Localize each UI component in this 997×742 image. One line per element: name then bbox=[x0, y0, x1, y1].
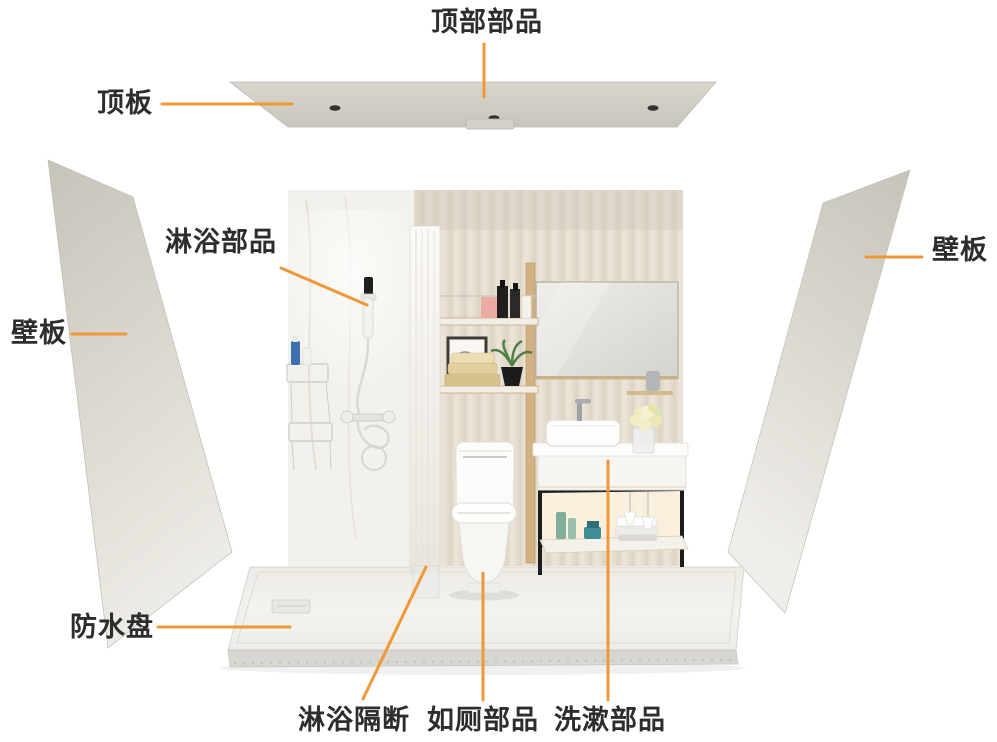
label-toilet-parts: 如厕部品 bbox=[427, 706, 539, 734]
downlight-icon bbox=[330, 105, 341, 111]
shower-partition bbox=[410, 226, 440, 598]
bottle-icon bbox=[522, 296, 531, 318]
bottle-icon bbox=[568, 518, 576, 539]
pump-bottle-icon bbox=[497, 286, 508, 318]
faucet-icon bbox=[577, 401, 582, 421]
jar-icon bbox=[584, 527, 601, 539]
shampoo-bottle-icon bbox=[291, 341, 300, 365]
label-ceiling-panel: 顶板 bbox=[97, 89, 153, 117]
cup-icon bbox=[646, 371, 660, 391]
ceiling-vent-icon bbox=[466, 119, 514, 129]
towel-icon bbox=[445, 374, 500, 386]
label-wall-panel-left: 壁板 bbox=[11, 319, 67, 347]
label-washing-parts: 洗漱部品 bbox=[554, 706, 666, 734]
ceiling-panel bbox=[230, 82, 716, 129]
label-top-parts: 顶部部品 bbox=[431, 8, 543, 36]
vanity-cabinet bbox=[538, 456, 686, 490]
exploded-bathroom-diagram: 顶部部品 顶板 淋浴部品 壁板 壁板 防水盘 淋浴隔断 如厕部品 洗漱部品 bbox=[0, 0, 997, 742]
glass-panel bbox=[413, 566, 439, 598]
label-waterproof-pan: 防水盘 bbox=[70, 613, 154, 641]
vase-icon bbox=[633, 428, 654, 453]
right-wall-panel bbox=[728, 170, 910, 613]
label-shower-parts: 淋浴部品 bbox=[165, 228, 277, 256]
label-shower-partition: 淋浴隔断 bbox=[298, 706, 410, 734]
downlight-icon bbox=[648, 105, 659, 111]
vessel-sink bbox=[546, 420, 620, 446]
bottle-icon bbox=[556, 512, 566, 539]
label-wall-panel-right: 壁板 bbox=[932, 236, 988, 264]
box-icon bbox=[481, 297, 497, 318]
toilet-tank bbox=[456, 442, 514, 484]
pump-bottle-icon bbox=[510, 289, 520, 318]
mirror bbox=[536, 282, 678, 380]
bottle-icon bbox=[303, 348, 311, 365]
